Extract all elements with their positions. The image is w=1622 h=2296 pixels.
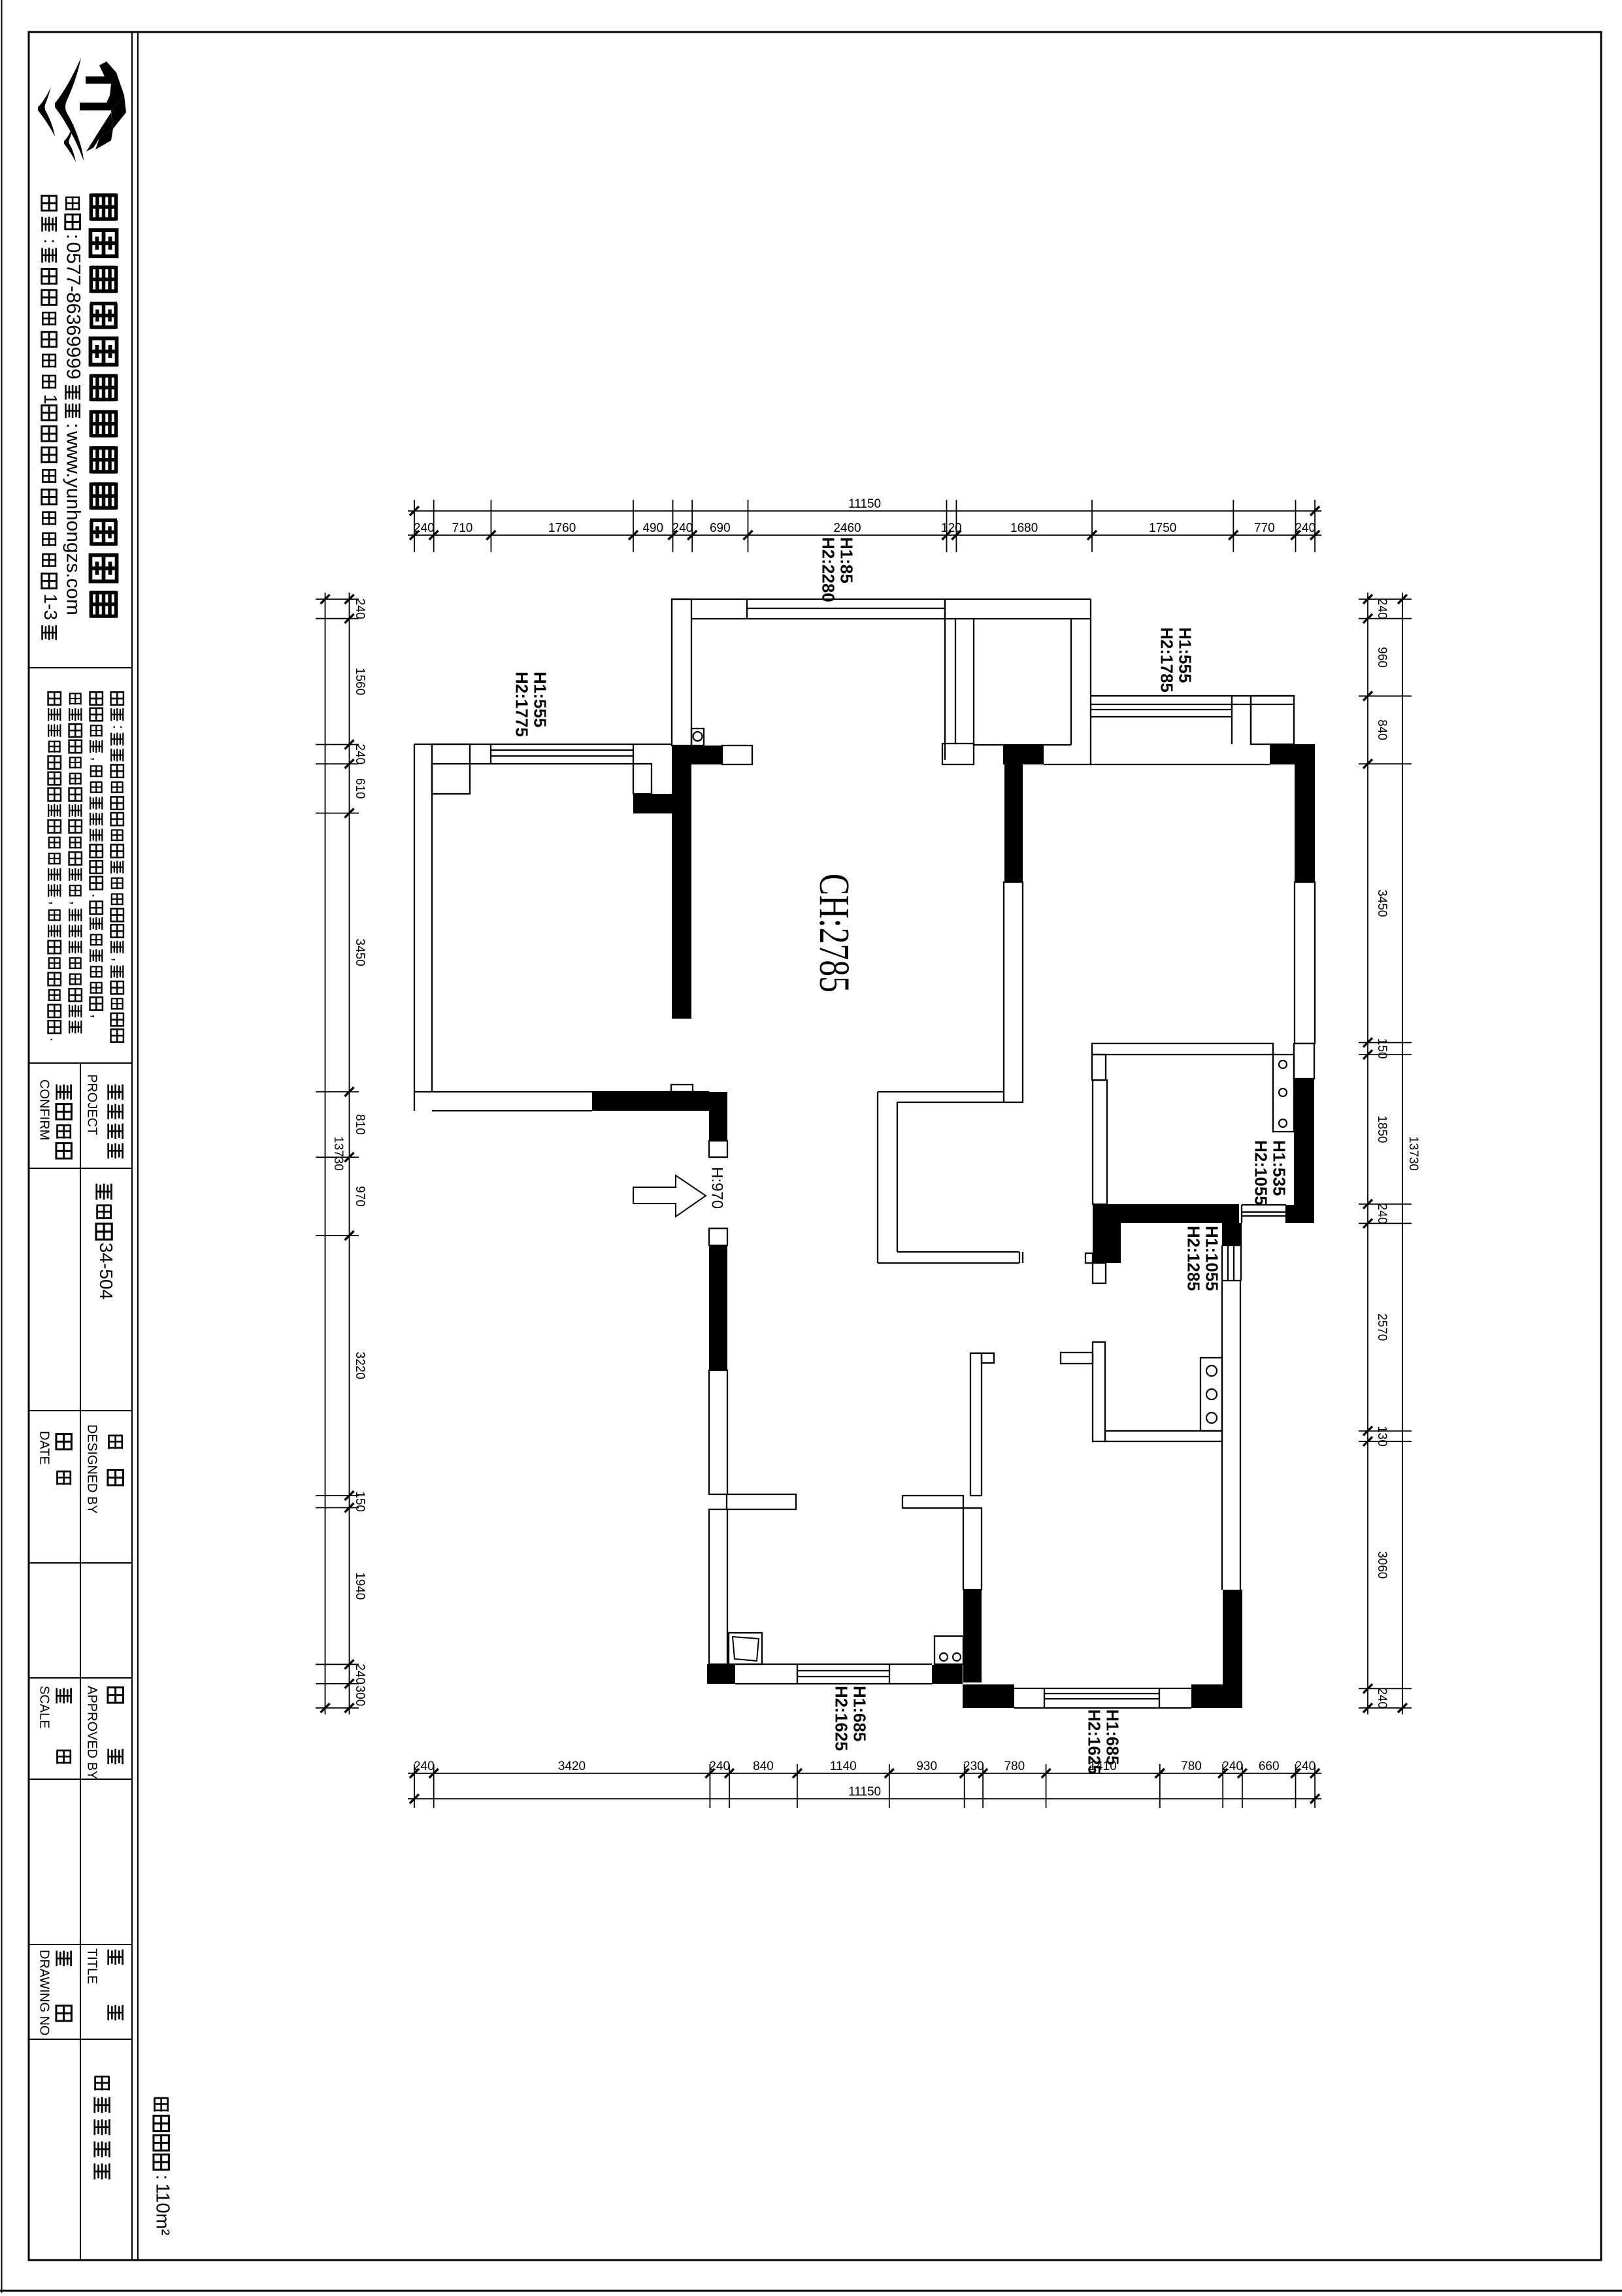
svg-text:1760: 1760 (548, 521, 576, 535)
svg-text:H2:2280: H2:2280 (819, 537, 838, 602)
svg-text:120: 120 (941, 521, 962, 535)
svg-text:3420: 3420 (558, 1760, 586, 1773)
svg-text:240: 240 (1295, 521, 1316, 535)
svg-text:240: 240 (353, 599, 367, 619)
svg-text:,: , (67, 901, 85, 906)
svg-text:970: 970 (353, 1186, 367, 1207)
svg-text:0577-86369999: 0577-86369999 (63, 242, 84, 380)
svg-text:240: 240 (1222, 1760, 1243, 1773)
svg-text:13730: 13730 (1406, 1136, 1420, 1171)
svg-text:H1:555: H1:555 (1176, 627, 1195, 683)
svg-text:DATE: DATE (37, 1431, 51, 1465)
svg-text:3220: 3220 (353, 1352, 367, 1379)
svg-text:2570: 2570 (1375, 1313, 1389, 1341)
svg-text:APPROVED BY: APPROVED BY (84, 1686, 99, 1779)
svg-text:34-504: 34-504 (96, 1243, 116, 1300)
svg-text:840: 840 (753, 1760, 774, 1773)
svg-text:H1:685: H1:685 (1103, 1709, 1123, 1765)
svg-text:,: , (109, 957, 127, 962)
svg-text:H1:85: H1:85 (837, 537, 857, 583)
svg-text:3450: 3450 (353, 939, 367, 966)
svg-text:690: 690 (710, 521, 731, 535)
svg-text:240: 240 (1295, 1760, 1316, 1773)
svg-text:,: , (88, 1014, 106, 1019)
svg-text::: : (109, 725, 127, 729)
svg-text:660: 660 (1259, 1760, 1280, 1773)
svg-text:150: 150 (353, 1491, 367, 1512)
svg-text:1-3: 1-3 (41, 594, 61, 620)
svg-text:1: 1 (41, 394, 61, 404)
svg-text:240: 240 (672, 521, 693, 535)
svg-text:150: 150 (1375, 1038, 1389, 1059)
svg-text:780: 780 (1181, 1760, 1202, 1773)
svg-text:610: 610 (353, 778, 367, 799)
svg-text:13730: 13730 (331, 1136, 345, 1171)
svg-text:,: , (46, 901, 64, 906)
svg-text:,: , (88, 757, 106, 761)
svg-text:780: 780 (1004, 1760, 1025, 1773)
svg-text:490: 490 (642, 521, 663, 535)
svg-text:240: 240 (414, 1760, 435, 1773)
svg-text:130: 130 (1375, 1426, 1389, 1447)
svg-text:www.yunhongzs.com: www.yunhongzs.com (63, 431, 84, 615)
svg-text:.: . (88, 893, 106, 898)
svg-text:110m²: 110m² (152, 2183, 173, 2235)
svg-text:CONFIRM: CONFIRM (37, 1079, 51, 1140)
svg-text:DRAWING NO: DRAWING NO (37, 1950, 51, 2035)
svg-text:1940: 1940 (353, 1572, 367, 1599)
svg-text::: : (152, 2174, 173, 2180)
svg-text::: : (63, 234, 84, 239)
svg-text:H2:1785: H2:1785 (1157, 627, 1177, 693)
svg-text:3060: 3060 (1375, 1551, 1389, 1579)
svg-text:840: 840 (1375, 719, 1389, 740)
svg-text:1850: 1850 (1375, 1115, 1389, 1143)
svg-text:300: 300 (353, 1686, 367, 1707)
svg-text:H2:1055: H2:1055 (1251, 1140, 1271, 1205)
svg-text:H1:685: H1:685 (850, 1686, 870, 1741)
svg-text:DESIGNED BY: DESIGNED BY (84, 1424, 99, 1514)
svg-text:H2:1775: H2:1775 (512, 672, 532, 737)
svg-text:H1:1055: H1:1055 (1202, 1226, 1222, 1291)
svg-text:810: 810 (353, 1114, 367, 1135)
svg-text:CH:2785: CH:2785 (810, 874, 858, 992)
svg-text:240: 240 (1375, 599, 1389, 619)
svg-text:H1:555: H1:555 (531, 672, 550, 727)
svg-text:1140: 1140 (830, 1760, 857, 1773)
svg-text:1560: 1560 (353, 668, 367, 695)
svg-text:230: 230 (963, 1760, 984, 1773)
svg-text:2460: 2460 (833, 521, 861, 535)
svg-text:PROJECT: PROJECT (84, 1074, 99, 1135)
svg-text:H2:1625: H2:1625 (1085, 1709, 1104, 1775)
svg-text:TITLE: TITLE (84, 1948, 99, 1984)
svg-text:240: 240 (353, 1664, 367, 1684)
svg-text::: : (41, 238, 61, 244)
svg-text:240: 240 (1375, 1204, 1389, 1224)
svg-text:11150: 11150 (848, 497, 881, 511)
svg-text::: : (63, 423, 84, 428)
svg-text:1750: 1750 (1149, 521, 1176, 535)
svg-text:SCALE: SCALE (37, 1686, 51, 1729)
svg-text:710: 710 (452, 521, 473, 535)
svg-text:240: 240 (414, 521, 435, 535)
svg-text:H1:535: H1:535 (1270, 1140, 1289, 1196)
svg-text:11150: 11150 (848, 1785, 881, 1799)
svg-text:240: 240 (709, 1760, 730, 1773)
svg-text:240: 240 (353, 744, 367, 764)
svg-text:240: 240 (1375, 1688, 1389, 1709)
svg-text:960: 960 (1375, 647, 1389, 668)
svg-text:770: 770 (1254, 521, 1275, 535)
svg-text:930: 930 (916, 1760, 937, 1773)
svg-text:.: . (46, 1038, 64, 1042)
svg-text:H:970: H:970 (708, 1167, 725, 1209)
svg-text:H2:1625: H2:1625 (832, 1686, 852, 1751)
svg-text:1680: 1680 (1010, 521, 1038, 535)
svg-text:3450: 3450 (1375, 889, 1389, 917)
svg-text:H2:1285: H2:1285 (1184, 1226, 1204, 1291)
